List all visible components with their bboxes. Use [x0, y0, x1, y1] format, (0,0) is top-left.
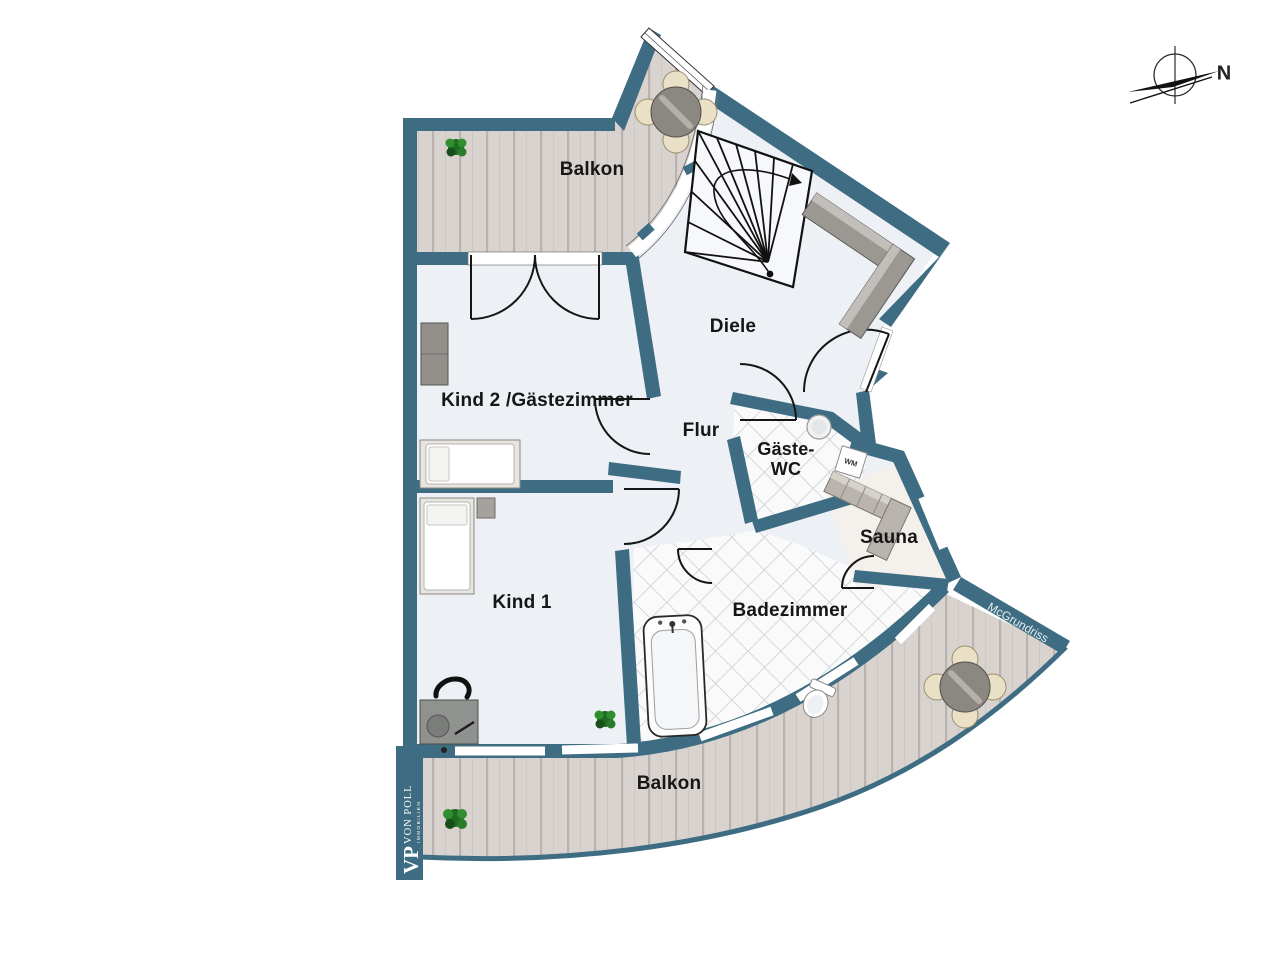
room-label-gaeste-wc: Gäste- WC: [757, 439, 814, 479]
plant-icon: [595, 711, 616, 729]
stair-start-dot: [767, 271, 774, 278]
room-label-balkon-top: Balkon: [560, 159, 625, 181]
room-label-kind2: Kind 2 /Gästezimmer: [441, 390, 633, 412]
plant-icon: [446, 139, 467, 157]
north-compass-icon: [1128, 46, 1219, 104]
north-label: N: [1217, 63, 1231, 86]
room-label-sauna: Sauna: [860, 527, 918, 549]
room-label-badezimmer: Badezimmer: [733, 600, 848, 622]
floor-plan-canvas: WM VP VON POLL IMMOBILIEN McGrundriss: [0, 0, 1280, 960]
logo-name: VON POLL: [403, 784, 414, 844]
floor-plan-page: WM VP VON POLL IMMOBILIEN McGrundriss Ba…: [0, 0, 1280, 960]
logo-sub: IMMOBILIEN: [416, 801, 422, 843]
room-label-balkon-bottom: Balkon: [637, 773, 702, 795]
bed: [420, 498, 474, 594]
room-label-diele: Diele: [710, 316, 756, 338]
logo-initials: VP: [399, 846, 423, 874]
wall-k2door-left: [417, 252, 468, 265]
wall-k2door-right: [602, 252, 626, 265]
room-label-kind1: Kind 1: [492, 592, 551, 614]
plant-icon: [443, 809, 467, 829]
room-label-gaeste-wc-line2: WC: [757, 459, 814, 479]
von-poll-logo: VP VON POLL IMMOBILIEN: [396, 746, 423, 880]
bed: [420, 440, 520, 488]
bathtub: [643, 615, 707, 738]
room-label-gaeste-wc-line1: Gäste-: [757, 439, 814, 459]
room-label-flur: Flur: [683, 420, 720, 442]
wall-top: [403, 118, 615, 131]
nightstand: [477, 498, 495, 518]
